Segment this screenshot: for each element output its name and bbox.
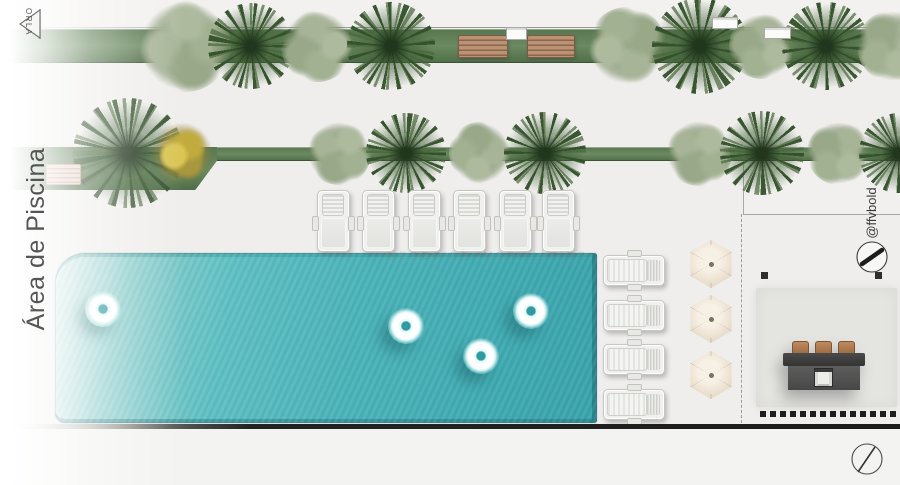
lounger-headrest bbox=[647, 394, 660, 415]
perimeter-wall bbox=[0, 424, 900, 429]
service-structure bbox=[712, 17, 738, 29]
boundary-dashed-line bbox=[741, 214, 742, 423]
lounger-headrest bbox=[647, 260, 660, 281]
pool-area-site-plan: NEGÓCIOS IMOBILIÁRIOS ORLA Área de Pisci… bbox=[0, 0, 900, 485]
pool-float-ring bbox=[463, 338, 499, 374]
lounger-seat bbox=[607, 259, 647, 282]
pool-float-ring bbox=[388, 308, 424, 344]
fence-post-dot bbox=[780, 411, 786, 417]
lounger-armrest bbox=[312, 216, 319, 231]
fence-post-dot bbox=[770, 411, 776, 417]
pool-float-ring bbox=[85, 291, 121, 327]
lounger-armrest bbox=[627, 384, 642, 391]
umbrella-pole bbox=[709, 373, 714, 378]
fence-post-dot bbox=[870, 411, 876, 417]
park-bench bbox=[527, 35, 575, 58]
umbrella-pole bbox=[709, 262, 714, 267]
sun-lounger bbox=[453, 190, 486, 252]
lounger-armrest bbox=[627, 250, 642, 257]
lounger-armrest bbox=[627, 295, 642, 302]
lounger-armrest bbox=[439, 216, 446, 231]
lounger-armrest bbox=[627, 329, 642, 336]
lounger-armrest bbox=[627, 373, 642, 380]
lounger-headrest bbox=[647, 305, 660, 326]
lounger-seat bbox=[457, 218, 482, 248]
lounger-headrest bbox=[647, 349, 660, 370]
lounger-armrest bbox=[494, 216, 501, 231]
lounger-seat bbox=[607, 304, 647, 327]
outside-ground bbox=[0, 429, 900, 485]
parasol-umbrella bbox=[687, 295, 735, 343]
service-structure bbox=[764, 27, 791, 39]
bbq-grill bbox=[783, 341, 865, 390]
fence-post-dot bbox=[810, 411, 816, 417]
sun-lounger bbox=[317, 190, 350, 252]
sun-lounger bbox=[603, 344, 665, 375]
pen-annotation-icon bbox=[847, 439, 887, 479]
lounger-armrest bbox=[530, 216, 537, 231]
lounger-armrest bbox=[627, 339, 642, 346]
lounger-headrest bbox=[367, 194, 389, 216]
lounger-headrest bbox=[458, 194, 480, 216]
lounger-seat bbox=[503, 218, 528, 248]
lounger-seat bbox=[321, 218, 346, 248]
sun-lounger bbox=[362, 190, 395, 252]
lounger-armrest bbox=[573, 216, 580, 231]
lounger-seat bbox=[607, 393, 647, 416]
lounger-armrest bbox=[348, 216, 355, 231]
parasol-umbrella bbox=[687, 351, 735, 399]
fence-post-dot bbox=[890, 411, 896, 417]
swimming-pool bbox=[55, 253, 597, 423]
lounger-armrest bbox=[448, 216, 455, 231]
park-bench bbox=[458, 35, 508, 58]
fence-post-dot bbox=[800, 411, 806, 417]
palm-tree bbox=[365, 112, 448, 195]
lounger-armrest bbox=[393, 216, 400, 231]
sun-lounger bbox=[542, 190, 575, 252]
lounger-armrest bbox=[627, 284, 642, 291]
lounger-armrest bbox=[484, 216, 491, 231]
fence-post-dot bbox=[850, 411, 856, 417]
lounger-armrest bbox=[403, 216, 410, 231]
sun-lounger bbox=[408, 190, 441, 252]
sun-lounger bbox=[603, 389, 665, 420]
pen-annotation-icon bbox=[852, 237, 892, 277]
lounger-seat bbox=[546, 218, 571, 248]
fence-post-dot bbox=[820, 411, 826, 417]
lounger-armrest bbox=[537, 216, 544, 231]
lounger-seat bbox=[366, 218, 391, 248]
lounger-armrest bbox=[357, 216, 364, 231]
fence-post-dot bbox=[830, 411, 836, 417]
fence-post-dot bbox=[880, 411, 886, 417]
lounger-seat bbox=[412, 218, 437, 248]
sun-lounger bbox=[603, 300, 665, 331]
orla-label: ORLA bbox=[21, 8, 33, 42]
grill-door-icon bbox=[814, 368, 833, 387]
parasol-umbrella bbox=[687, 240, 735, 288]
umbrella-pole bbox=[709, 317, 714, 322]
sun-lounger bbox=[499, 190, 532, 252]
bush-tree bbox=[305, 119, 372, 186]
grill-counter bbox=[783, 353, 865, 366]
fence-post-dot bbox=[760, 411, 766, 417]
lounger-headrest bbox=[322, 194, 344, 216]
lounger-headrest bbox=[413, 194, 435, 216]
pergola-post bbox=[761, 272, 768, 279]
pool-float-ring bbox=[513, 293, 549, 329]
fence-post-dot bbox=[860, 411, 866, 417]
fence-post-dot bbox=[840, 411, 846, 417]
sun-lounger bbox=[603, 255, 665, 286]
lounger-headrest bbox=[547, 194, 569, 216]
lounger-headrest bbox=[504, 194, 526, 216]
lounger-seat bbox=[607, 348, 647, 371]
fence-post-dot bbox=[790, 411, 796, 417]
service-structure bbox=[506, 27, 527, 40]
area-title-label: Área de Piscina bbox=[19, 119, 53, 359]
